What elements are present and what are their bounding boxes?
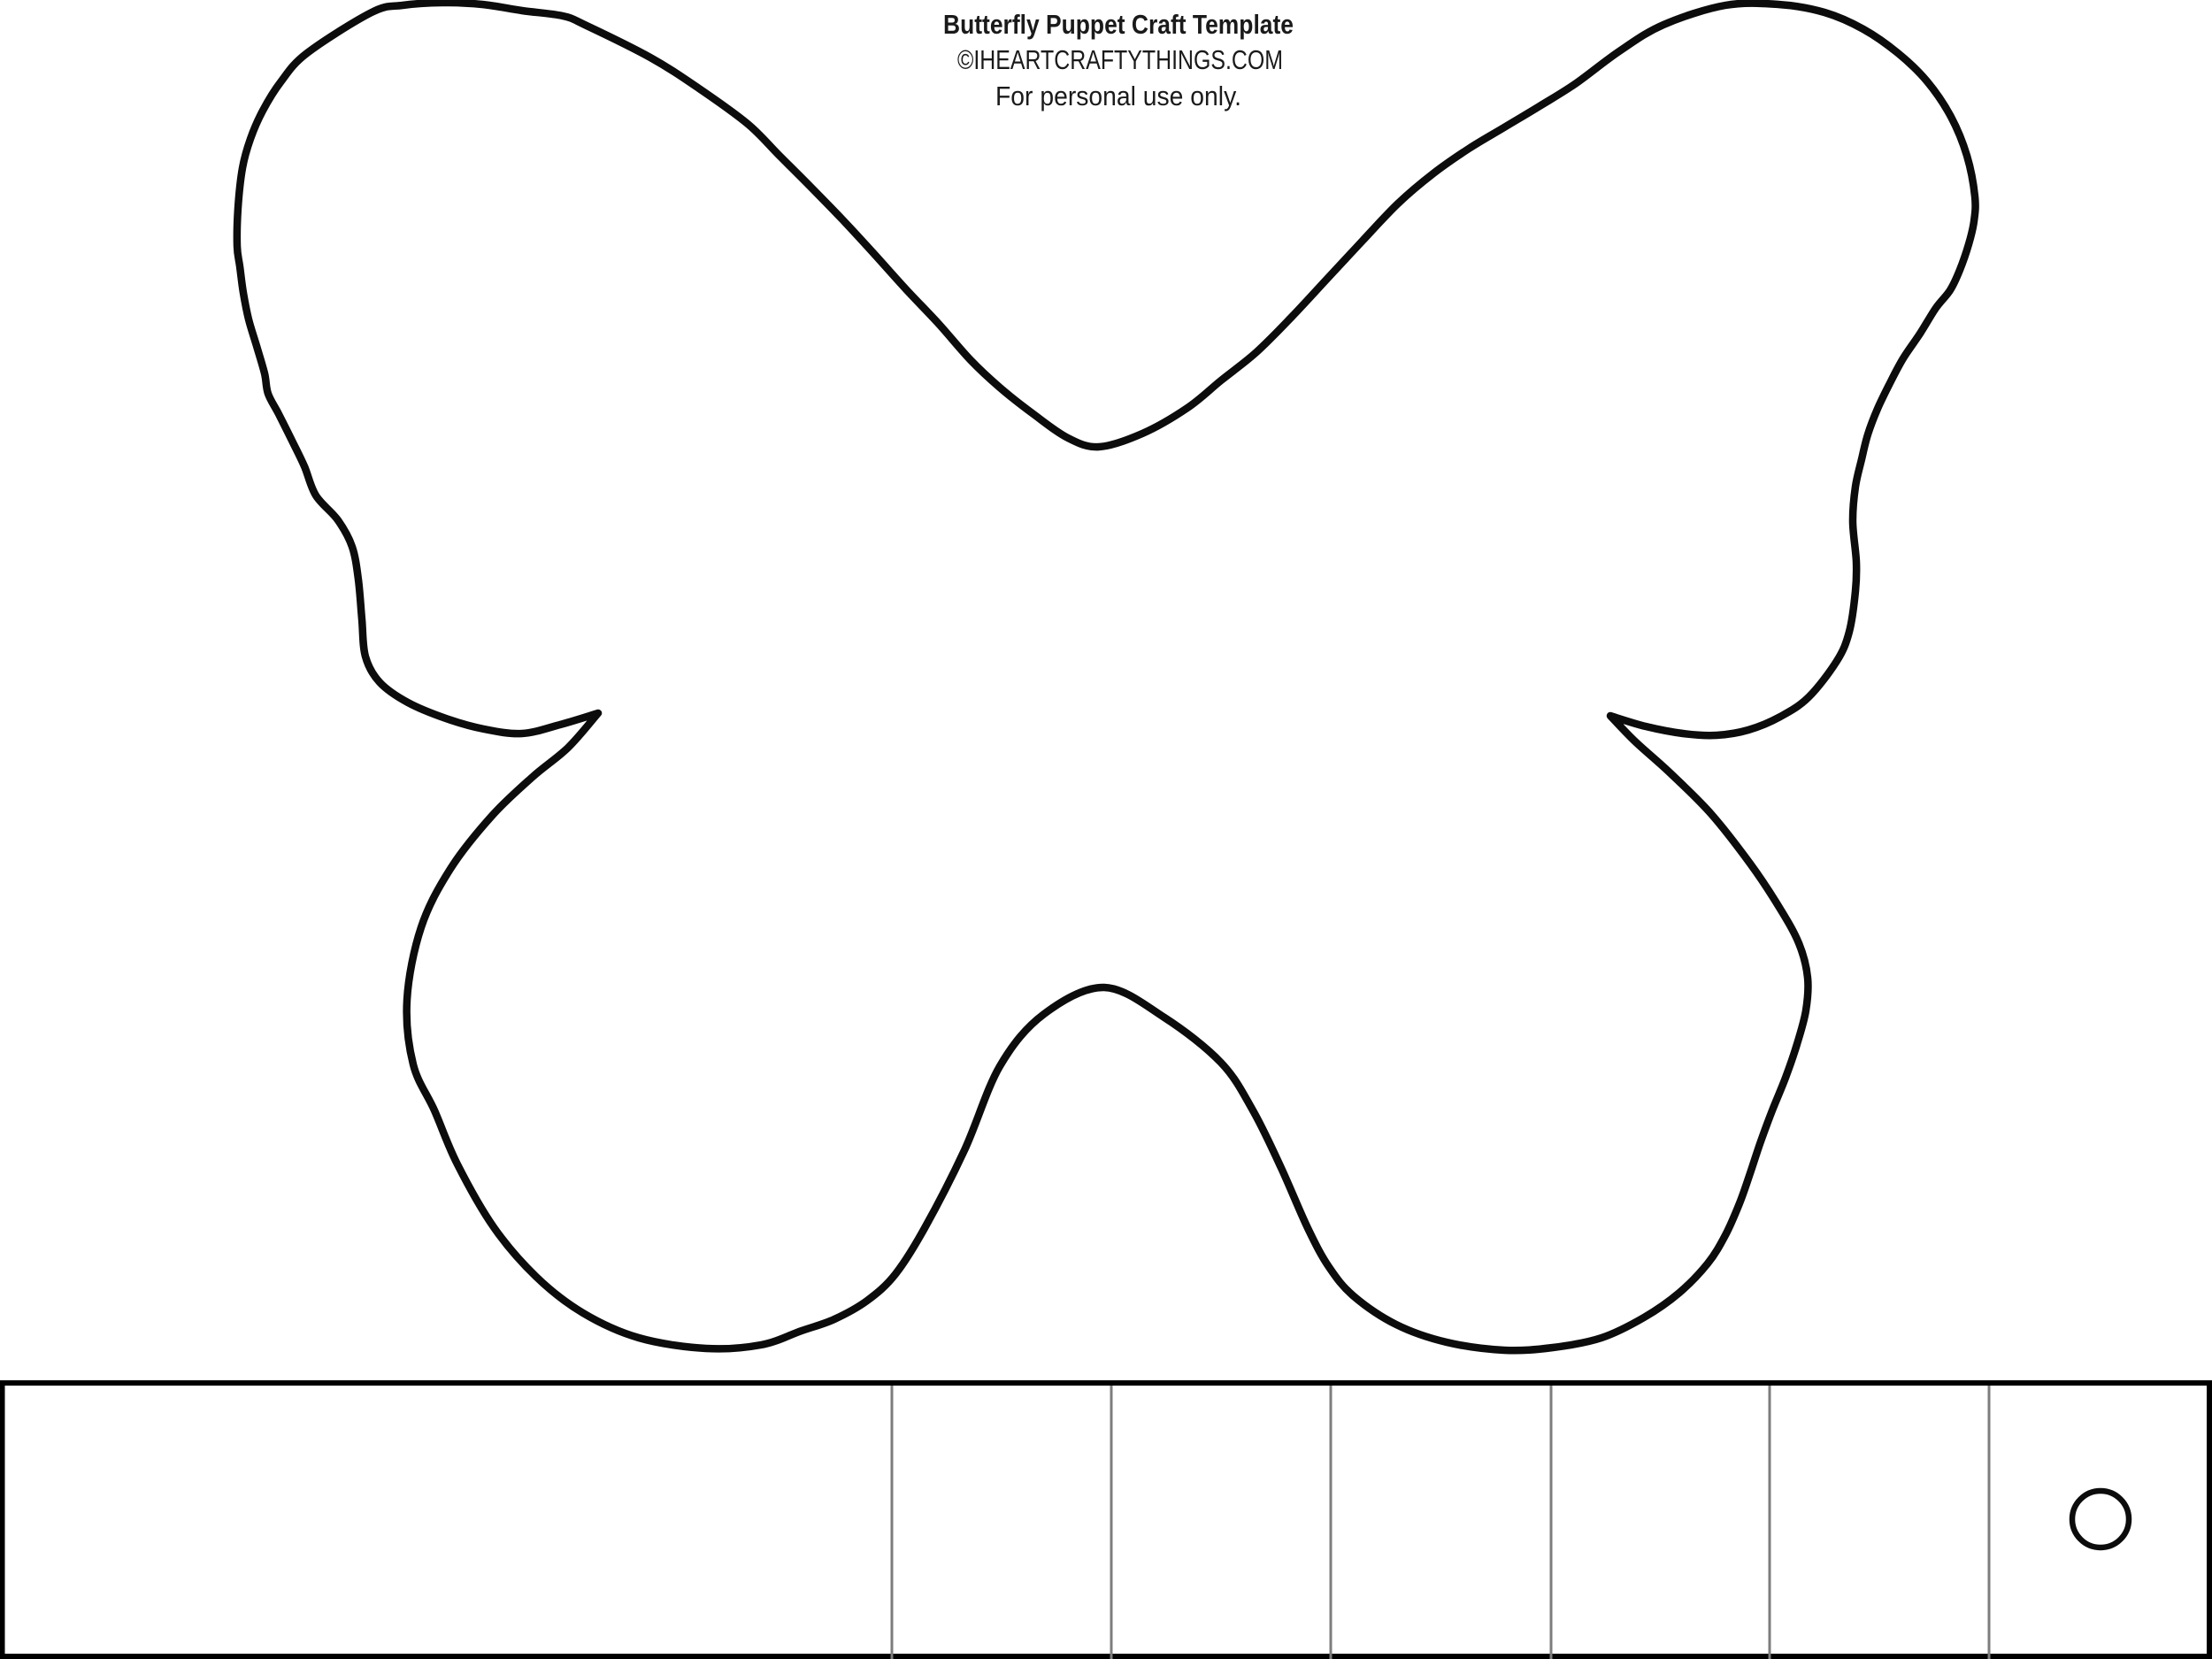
svg-text:For personal use only.: For personal use only. <box>995 81 1241 111</box>
svg-text:Butterfly Puppet Craft Templat: Butterfly Puppet Craft Template <box>943 9 1294 40</box>
svg-text:©IHEARTCRAFTYTHINGS.COM: ©IHEARTCRAFTYTHINGS.COM <box>957 44 1283 75</box>
